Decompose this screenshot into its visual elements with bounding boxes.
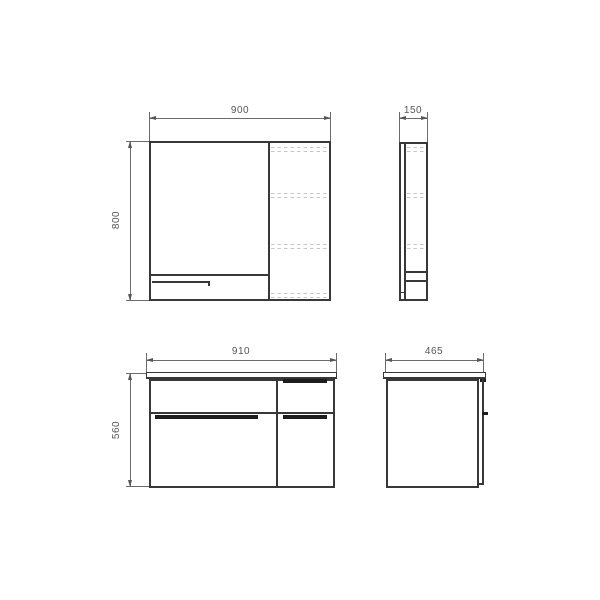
extension-line bbox=[483, 353, 484, 373]
dim-vanity-depth-label: 465 bbox=[413, 346, 455, 358]
hidden-shelf-line bbox=[407, 193, 426, 194]
dim-mirror-depth-label: 150 bbox=[392, 105, 434, 117]
mirror-door-panel-line bbox=[404, 142, 406, 301]
dimension-arrow-icon bbox=[128, 373, 132, 380]
dim-vanity-height-label: 560 bbox=[111, 409, 123, 451]
dimension-line bbox=[146, 360, 337, 361]
drawer-column-divider bbox=[276, 379, 278, 488]
dimension-arrow-icon bbox=[330, 358, 337, 362]
mirror-side-bottom-shelf-line bbox=[404, 280, 426, 282]
hidden-shelf-line bbox=[407, 147, 426, 148]
dimension-arrow-icon bbox=[149, 116, 156, 120]
vanity-side-outline bbox=[386, 379, 479, 488]
hidden-shelf-line bbox=[271, 297, 329, 298]
dimension-arrow-icon bbox=[385, 358, 392, 362]
dimension-line bbox=[385, 360, 484, 361]
open-shelf-line bbox=[152, 281, 210, 283]
drawer-handle-groove bbox=[283, 415, 327, 419]
dimension-arrow-icon bbox=[128, 480, 132, 487]
dim-mirror-width-label: 900 bbox=[219, 105, 261, 117]
dimension-arrow-icon bbox=[128, 294, 132, 301]
hidden-shelf-line bbox=[271, 293, 329, 294]
technical-drawing-canvas: 900 800 150 bbox=[0, 0, 600, 600]
extension-line bbox=[146, 353, 147, 373]
extension-line bbox=[385, 353, 386, 373]
dim-mirror-height-label: 800 bbox=[111, 199, 123, 241]
hidden-shelf-line bbox=[271, 151, 329, 152]
dimension-line bbox=[149, 118, 331, 119]
dimension-line bbox=[130, 373, 131, 487]
dimension-line bbox=[130, 141, 131, 301]
hidden-shelf-line bbox=[271, 147, 329, 148]
hidden-shelf-line bbox=[407, 248, 426, 249]
open-shelf-end-tick bbox=[208, 281, 210, 286]
drawer-handle-tick bbox=[482, 412, 488, 415]
dimension-arrow-icon bbox=[477, 358, 484, 362]
dimension-arrow-icon bbox=[128, 141, 132, 148]
dim-vanity-width-label: 910 bbox=[220, 346, 262, 358]
hidden-shelf-line bbox=[407, 197, 426, 198]
drawer-front-panel-line bbox=[482, 379, 484, 485]
mirror-side-base-tick bbox=[400, 292, 405, 293]
hidden-shelf-line bbox=[271, 197, 329, 198]
mirror-door-divider bbox=[268, 141, 270, 301]
vanity-countertop bbox=[146, 372, 337, 379]
hidden-shelf-line bbox=[407, 151, 426, 152]
mirror-side-bottom-shelf-line bbox=[404, 271, 426, 273]
hidden-shelf-line bbox=[271, 193, 329, 194]
mirror-door-bottom-edge bbox=[149, 274, 270, 276]
drawer-front-bottom-join bbox=[477, 483, 484, 485]
hidden-shelf-line bbox=[271, 248, 329, 249]
vanity-side-countertop bbox=[383, 372, 486, 379]
dimension-arrow-icon bbox=[146, 358, 153, 362]
vanity-cabinet-outline bbox=[149, 379, 335, 488]
dimension-arrow-icon bbox=[324, 116, 331, 120]
hidden-shelf-line bbox=[407, 244, 426, 245]
mirror-cabinet-outline bbox=[149, 141, 331, 301]
drawer-handle-groove bbox=[155, 415, 258, 419]
drawer-handle-groove bbox=[283, 379, 327, 383]
hidden-shelf-line bbox=[271, 244, 329, 245]
drawer-row-divider bbox=[149, 412, 335, 414]
extension-line bbox=[336, 353, 337, 373]
